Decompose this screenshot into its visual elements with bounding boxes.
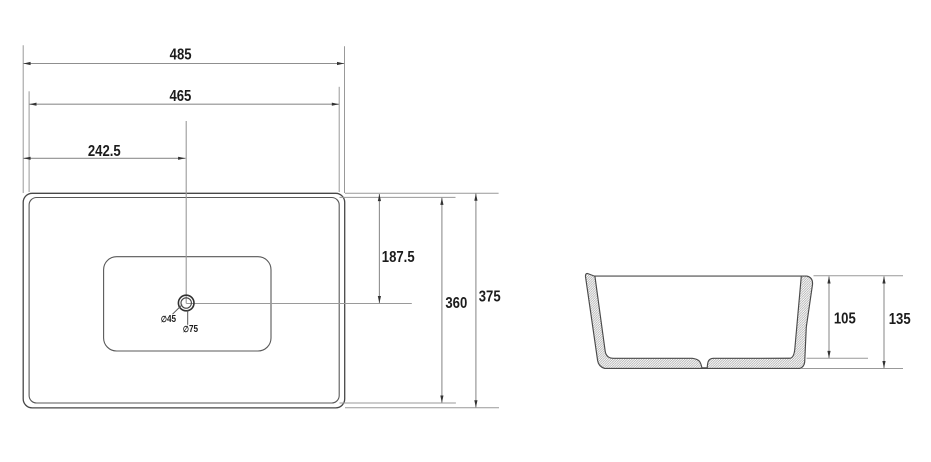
svg-text:485: 485 (170, 46, 192, 63)
svg-text:135: 135 (889, 311, 911, 328)
svg-text:∅75: ∅75 (183, 323, 198, 334)
svg-text:465: 465 (169, 88, 191, 105)
svg-text:242.5: 242.5 (88, 143, 121, 160)
svg-text:187.5: 187.5 (382, 249, 415, 266)
svg-text:360: 360 (445, 295, 467, 312)
svg-text:∅45: ∅45 (161, 313, 176, 324)
svg-text:375: 375 (479, 288, 501, 305)
svg-text:105: 105 (834, 311, 856, 328)
